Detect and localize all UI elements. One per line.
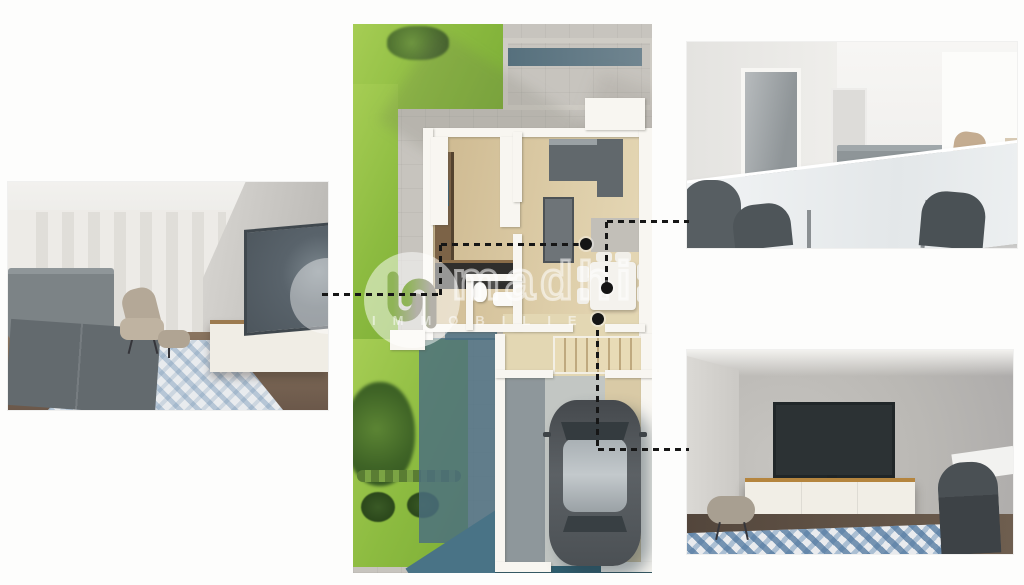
sunken-patio-band: [508, 48, 642, 66]
dining-chair-dark: [937, 460, 1002, 554]
connector-bottom-right-a: [596, 319, 599, 450]
photo-tv-wall: [687, 350, 1013, 554]
car-windshield: [561, 422, 629, 440]
garage-floor-shadow: [505, 376, 545, 566]
garage-wall-top-b: [605, 370, 652, 378]
car-rear-window: [563, 516, 627, 532]
connector-dot-living: [580, 238, 592, 250]
watermark-brand: madhi: [452, 254, 636, 308]
stool: [707, 496, 755, 524]
connector-left-b: [439, 245, 442, 295]
connector-left-a: [322, 293, 441, 296]
document-page: madhi IMMOBILIER: [0, 0, 1024, 585]
garage-wall-bottom-a: [495, 562, 551, 572]
dining-chair-right: [919, 189, 988, 248]
garage-wall-top-a: [495, 370, 553, 378]
watermark-logo-icon: [362, 250, 462, 350]
connector-bottom-right-b: [598, 448, 689, 451]
connector-top-right-b: [607, 220, 689, 223]
plan-sofa-1-return: [597, 139, 623, 197]
bush-dark-1: [361, 492, 395, 522]
staircase: [553, 336, 645, 374]
car-mirror-left: [543, 432, 551, 437]
table-leg: [807, 210, 811, 248]
photo-dining-room: [687, 42, 1017, 248]
connector-top-right-a: [605, 222, 608, 288]
connector-dot-hall: [592, 313, 604, 325]
tv-screen: [773, 402, 895, 478]
ottoman: [158, 330, 190, 348]
wall-corner-block: [585, 98, 645, 130]
wall-divider-a: [513, 132, 522, 202]
connector-left-c: [441, 243, 586, 246]
photo-living-room-left: [8, 182, 328, 410]
car-mirror-right: [639, 432, 647, 437]
watermark-tagline: IMMOBILIER: [372, 314, 620, 327]
plan-gray-mat: [591, 218, 639, 252]
connector-dot-dining: [601, 282, 613, 294]
wall-pillar-1: [431, 137, 448, 225]
dining-chair-front-1: [687, 180, 741, 248]
